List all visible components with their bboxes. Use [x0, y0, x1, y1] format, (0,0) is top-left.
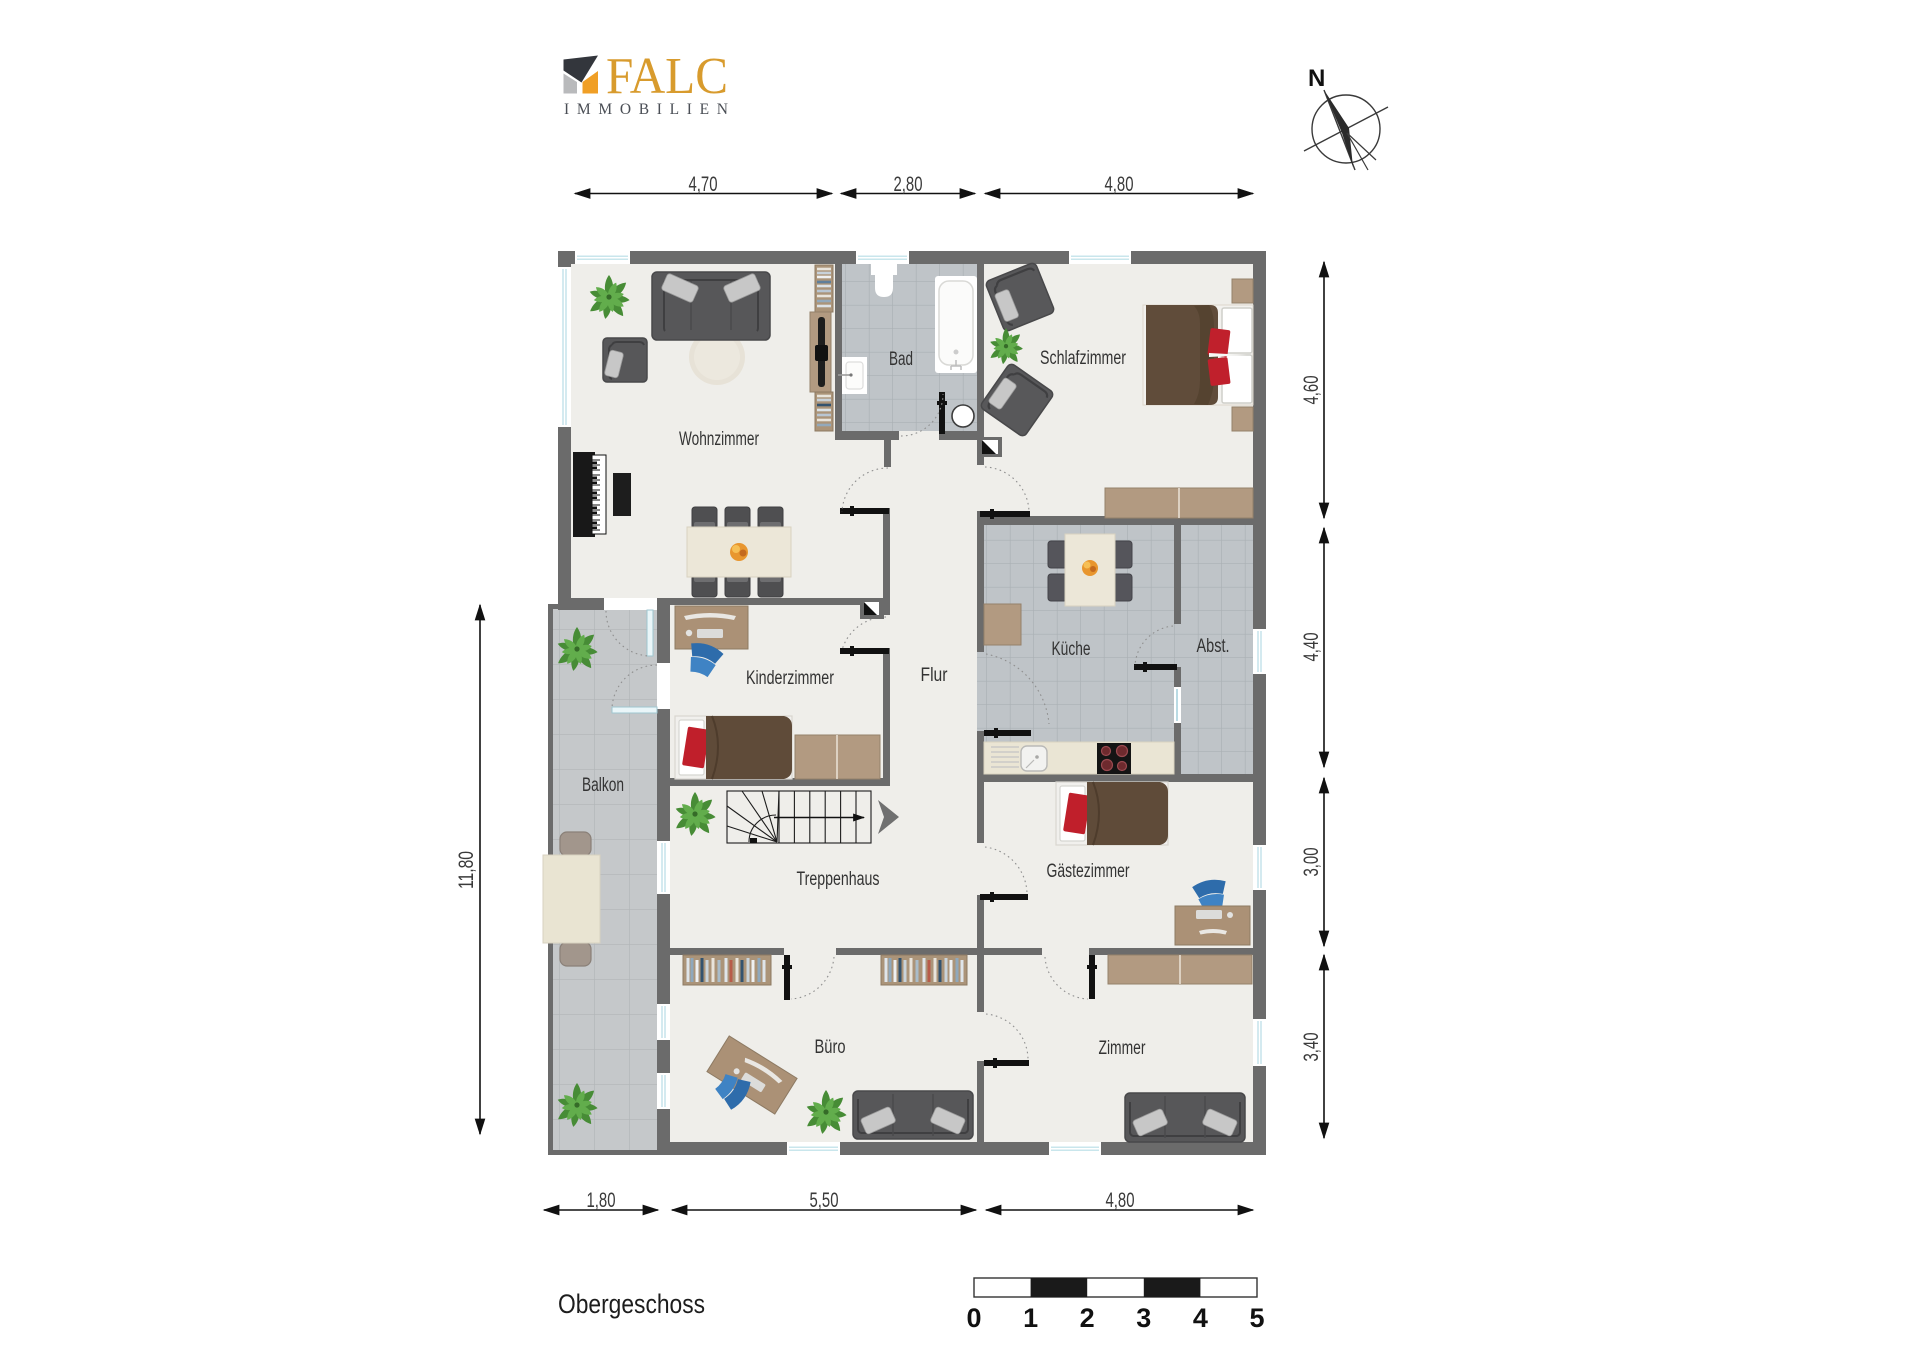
svg-text:4: 4 [1193, 1303, 1208, 1333]
svg-text:Wohnzimmer: Wohnzimmer [679, 429, 759, 450]
svg-text:Obergeschoss: Obergeschoss [558, 1289, 705, 1319]
svg-text:Büro: Büro [815, 1037, 846, 1058]
svg-text:5: 5 [1249, 1303, 1264, 1333]
svg-text:2: 2 [1080, 1303, 1095, 1333]
svg-text:0: 0 [966, 1303, 981, 1333]
svg-text:4,80: 4,80 [1106, 1189, 1135, 1212]
svg-text:Abst.: Abst. [1197, 636, 1230, 657]
svg-text:1: 1 [1023, 1303, 1038, 1333]
svg-text:Gästezimmer: Gästezimmer [1047, 861, 1130, 882]
svg-text:3,40: 3,40 [1300, 1033, 1323, 1062]
svg-text:IMMOBILIEN: IMMOBILIEN [564, 101, 728, 118]
svg-text:4,70: 4,70 [689, 173, 718, 196]
svg-text:N: N [1308, 65, 1325, 92]
svg-text:4,40: 4,40 [1300, 633, 1323, 662]
svg-text:3: 3 [1136, 1303, 1151, 1333]
svg-text:Bad: Bad [889, 349, 913, 370]
svg-text:2,80: 2,80 [894, 173, 923, 196]
svg-text:Balkon: Balkon [582, 775, 624, 796]
svg-text:Kinderzimmer: Kinderzimmer [746, 668, 834, 689]
svg-text:4,60: 4,60 [1300, 376, 1323, 405]
svg-text:Zimmer: Zimmer [1099, 1038, 1146, 1059]
svg-text:Schlafzimmer: Schlafzimmer [1040, 348, 1127, 369]
svg-text:Küche: Küche [1052, 639, 1091, 660]
svg-text:5,50: 5,50 [810, 1189, 839, 1212]
svg-text:FALC: FALC [606, 48, 728, 105]
svg-text:1,80: 1,80 [587, 1189, 616, 1212]
svg-text:Flur: Flur [921, 665, 949, 686]
svg-text:4,80: 4,80 [1105, 173, 1134, 196]
svg-text:11,80: 11,80 [455, 851, 478, 889]
svg-text:3,00: 3,00 [1300, 848, 1323, 877]
svg-text:Treppenhaus: Treppenhaus [797, 869, 880, 890]
